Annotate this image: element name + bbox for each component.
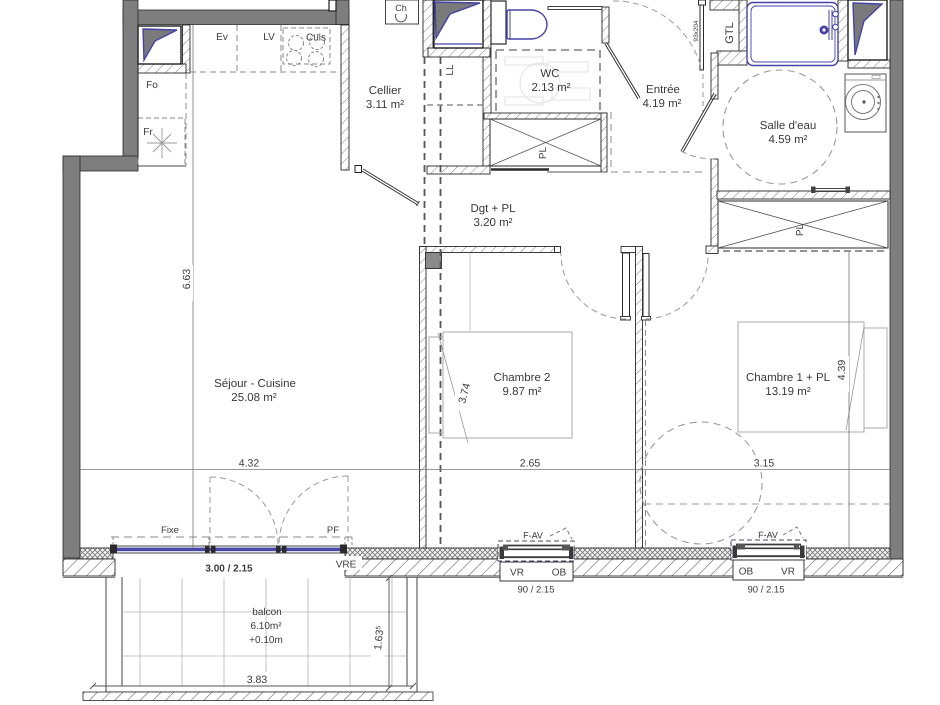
svg-text:Chambre 2: Chambre 2 — [494, 372, 551, 384]
svg-text:+0.10m: +0.10m — [249, 635, 283, 646]
svg-text:Entrée: Entrée — [646, 84, 680, 96]
svg-text:OB: OB — [739, 567, 754, 578]
svg-text:balcon: balcon — [252, 607, 281, 618]
svg-text:6.63: 6.63 — [181, 269, 193, 290]
svg-text:6.10m²: 6.10m² — [250, 621, 282, 632]
svg-text:4.19 m²: 4.19 m² — [643, 98, 682, 110]
svg-text:25.08 m²: 25.08 m² — [231, 392, 277, 404]
svg-text:13.19 m²: 13.19 m² — [765, 386, 811, 398]
svg-text:2.13 m²: 2.13 m² — [532, 82, 571, 94]
svg-text:OB: OB — [552, 568, 567, 579]
svg-text:VR: VR — [510, 568, 524, 579]
svg-text:90 / 2.15: 90 / 2.15 — [518, 585, 555, 596]
svg-text:Séjour - Cuisine: Séjour - Cuisine — [214, 378, 296, 390]
svg-text:PF: PF — [327, 525, 339, 536]
svg-text:Ev: Ev — [216, 32, 228, 43]
svg-text:Cellier: Cellier — [369, 85, 402, 97]
svg-text:Cuis: Cuis — [306, 33, 326, 44]
svg-text:F-AV: F-AV — [758, 530, 778, 540]
svg-text:Dgt + PL: Dgt + PL — [470, 203, 516, 215]
svg-text:PL: PL — [795, 223, 806, 236]
svg-text:VRE: VRE — [336, 560, 357, 571]
svg-text:3.83: 3.83 — [247, 674, 268, 686]
svg-text:Fo: Fo — [146, 80, 158, 91]
svg-text:PL: PL — [538, 146, 549, 159]
svg-text:3.20 m²: 3.20 m² — [474, 217, 513, 229]
svg-text:F-AV: F-AV — [523, 531, 543, 541]
svg-text:90 / 2.15: 90 / 2.15 — [748, 585, 785, 596]
svg-text:Salle d'eau: Salle d'eau — [760, 120, 817, 132]
svg-text:3.15: 3.15 — [754, 458, 775, 470]
svg-text:4.59 m²: 4.59 m² — [769, 134, 808, 146]
svg-text:3.11 m²: 3.11 m² — [366, 99, 404, 111]
svg-text:2.65: 2.65 — [520, 458, 541, 470]
svg-text:3.00 / 2.15: 3.00 / 2.15 — [205, 564, 253, 575]
svg-text:4.32: 4.32 — [239, 458, 260, 470]
svg-text:4.39: 4.39 — [836, 360, 848, 381]
svg-text:LL: LL — [445, 64, 456, 76]
svg-text:GTL: GTL — [724, 22, 736, 43]
svg-text:VR: VR — [781, 567, 795, 578]
svg-text:93x204: 93x204 — [693, 20, 700, 42]
svg-text:LV: LV — [263, 32, 275, 43]
svg-text:Chambre 1 + PL: Chambre 1 + PL — [746, 372, 831, 384]
svg-text:Fr: Fr — [143, 127, 153, 138]
svg-text:Fixe: Fixe — [161, 525, 179, 536]
svg-text:9.87 m²: 9.87 m² — [503, 386, 542, 398]
svg-text:WC: WC — [540, 68, 559, 80]
svg-text:Ch: Ch — [395, 3, 407, 13]
